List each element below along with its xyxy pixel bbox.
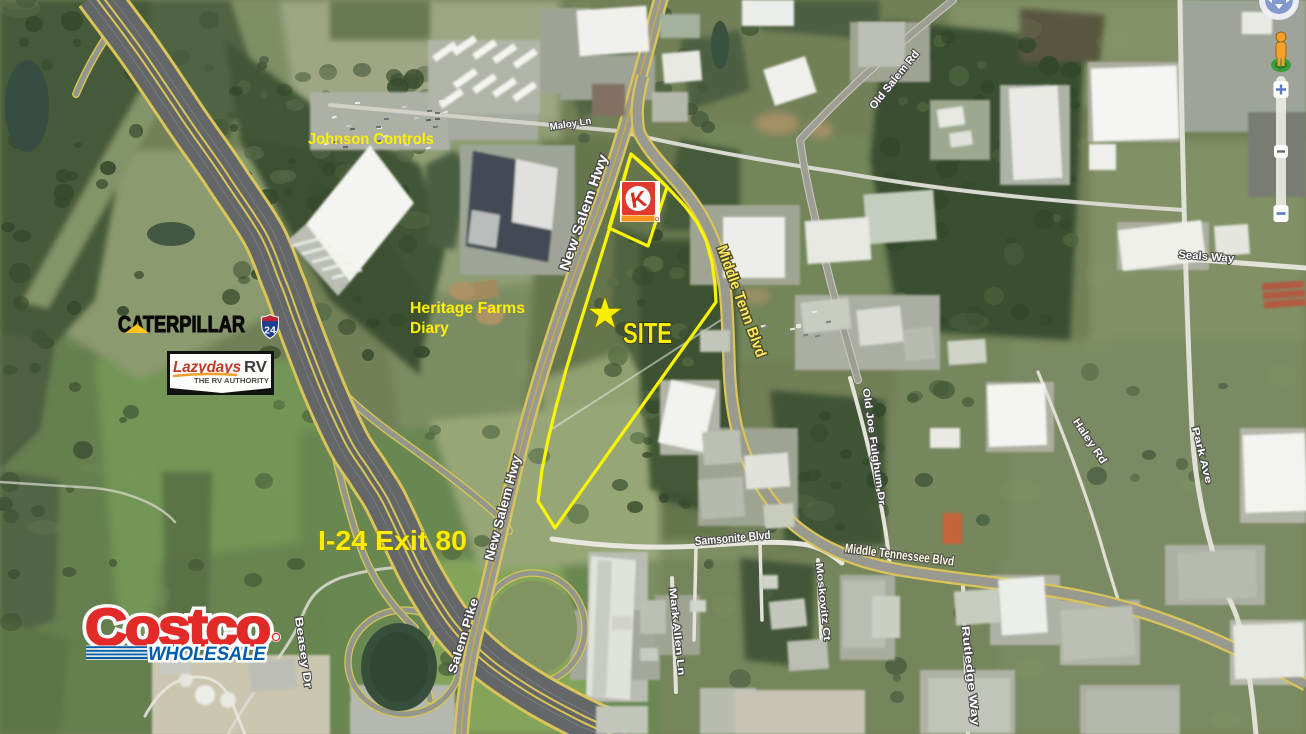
svg-text:Johnson Controls: Johnson Controls — [308, 131, 434, 148]
svg-text:RV: RV — [244, 359, 268, 376]
svg-text:Diary: Diary — [410, 320, 449, 337]
svg-text:Heritage Farms: Heritage Farms — [410, 300, 525, 317]
svg-text:SITE: SITE — [623, 318, 672, 350]
svg-text:WHOLESALE: WHOLESALE — [146, 643, 268, 665]
svg-text:24: 24 — [264, 325, 276, 337]
svg-text:CATERPILLAR: CATERPILLAR — [118, 311, 245, 337]
svg-text:I-24 Exit 80: I-24 Exit 80 — [318, 525, 467, 556]
svg-text:THE RV AUTHORITY: THE RV AUTHORITY — [194, 376, 269, 385]
